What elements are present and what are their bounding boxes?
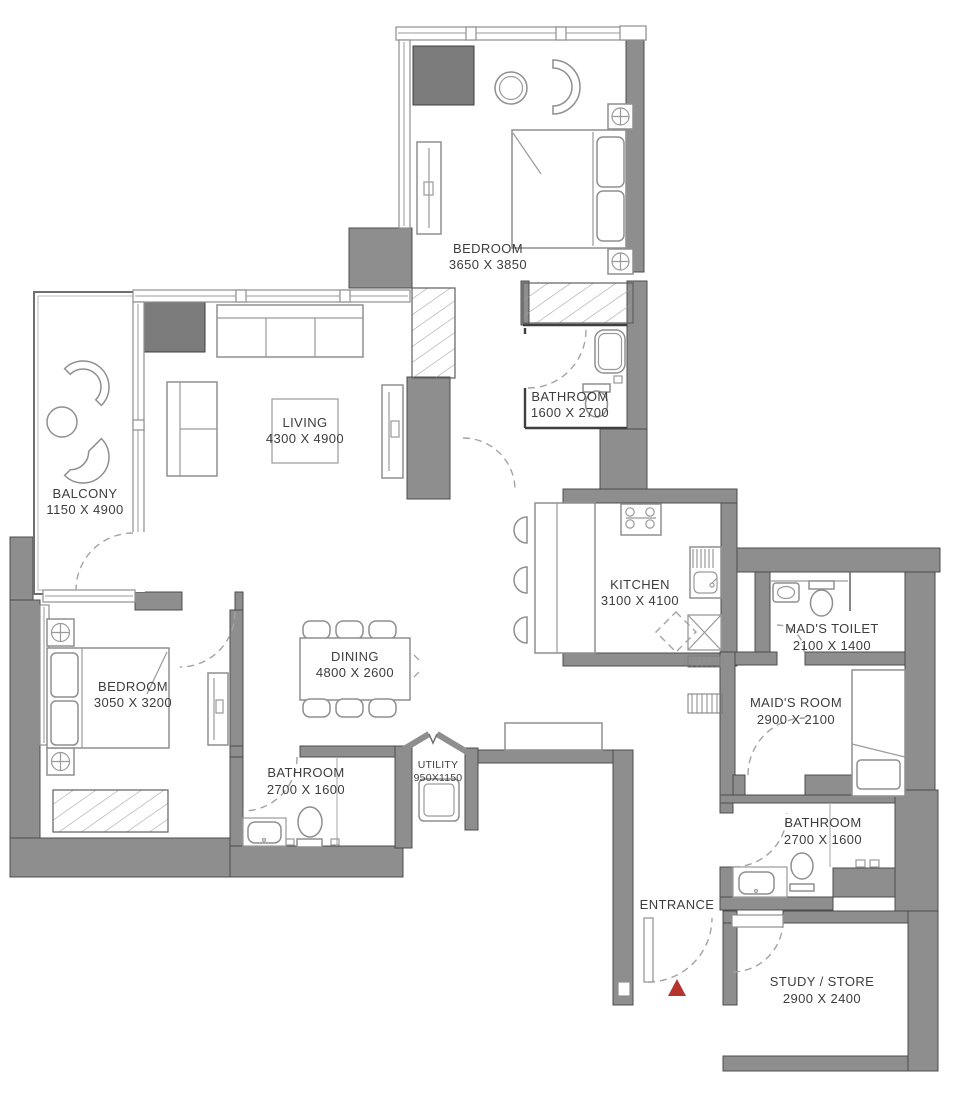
maids-room-dims: 2900 X 2100: [757, 712, 835, 727]
wall-segment: [755, 572, 770, 652]
wall-segment: [733, 775, 745, 795]
sofa-three-seat-icon: [217, 305, 363, 357]
living-dims: 4300 X 4900: [266, 431, 344, 446]
dining-chair-icon: [369, 699, 396, 717]
furniture-hall: [505, 723, 602, 750]
wall-segment: [723, 1056, 908, 1071]
closet-hatched: [412, 288, 455, 378]
wardrobe-block: [413, 46, 474, 105]
wall-segment: [733, 652, 777, 665]
wall-segment: [720, 867, 733, 900]
wardrobe-hatched: [53, 790, 168, 832]
balcony-dims: 1150 X 4900: [46, 502, 123, 517]
wall-segment: [895, 790, 938, 911]
pillow-icon: [597, 191, 624, 241]
bar-stool-icon: [514, 617, 527, 643]
study-label: STUDY / STORE: [770, 974, 874, 989]
pillow-icon: [51, 653, 78, 697]
furniture-bathroom-left: [243, 807, 339, 847]
wall-segment: [465, 748, 478, 830]
furniture-maids-room: [852, 670, 905, 796]
wall-segment: [805, 652, 905, 665]
bedroom-top-label: BEDROOM: [453, 241, 523, 256]
pillow-icon: [857, 760, 900, 789]
bedroom-second-label: BEDROOM: [98, 679, 168, 694]
kitchen-dims: 3100 X 4100: [601, 593, 679, 608]
furniture-maids-toilet: [770, 581, 848, 616]
maids-room-label: MAID'S ROOM: [750, 695, 842, 710]
bedroom-second-dims: 3050 X 3200: [94, 695, 172, 710]
fixture-mark: [870, 860, 879, 867]
bathroom-left-dims: 2700 X 1600: [267, 782, 345, 797]
ac-unit: [688, 694, 722, 713]
bar-stool-icon: [514, 567, 527, 593]
tv-unit-icon: [208, 673, 228, 745]
wall-segment: [720, 897, 833, 910]
fixture-mark: [614, 376, 622, 383]
utility-label: UTILITY: [418, 759, 459, 771]
toilet-tank: [297, 839, 322, 847]
sink-icon: [248, 822, 281, 843]
entrance-label: ENTRANCE: [640, 897, 715, 912]
study-door-leaf: [732, 915, 783, 927]
door-arc: [733, 813, 787, 867]
wall-segment: [478, 750, 613, 763]
dining-dims: 4800 X 2600: [316, 665, 394, 680]
floor-plan: BEDROOM 3650 X 3850 BATHROOM 1600 X 2700…: [0, 0, 963, 1100]
wall-segment: [230, 746, 243, 757]
balcony-table-icon: [47, 407, 77, 437]
furniture-balcony: [47, 350, 120, 494]
dining-chair-icon: [303, 699, 330, 717]
toilet-icon: [791, 853, 813, 879]
walls: [10, 40, 940, 1071]
dining-label: DINING: [331, 649, 379, 664]
balcony-door-opening: [131, 532, 145, 592]
wall-end-cap: [618, 982, 630, 996]
utility-dims: 950X1150: [414, 772, 463, 784]
bedroom-top-dims: 3650 X 3850: [449, 257, 527, 272]
door-arc: [732, 921, 783, 972]
living-label: LIVING: [282, 415, 327, 430]
wall-segment: [407, 377, 450, 499]
fixture-mark: [286, 839, 294, 845]
bathroom-right-dims: 2700 X 1600: [784, 832, 862, 847]
door-arc: [463, 438, 515, 490]
wall-segment: [908, 911, 938, 1071]
study-dims: 2900 X 2400: [783, 991, 861, 1006]
toilet-icon: [811, 590, 833, 616]
wall-segment: [783, 911, 926, 923]
dining-chair-icon: [303, 621, 330, 639]
wall-segment: [230, 757, 243, 846]
wall-segment: [720, 803, 733, 813]
wall-segment: [723, 923, 737, 1005]
toilet-icon: [298, 807, 322, 837]
wall-segment: [135, 592, 182, 610]
wall-segment: [905, 572, 935, 790]
wall-segment: [720, 652, 735, 795]
bathroom-right-label: BATHROOM: [784, 815, 861, 830]
wall-segment: [737, 548, 940, 572]
window-joint: [466, 27, 476, 40]
wall-segment: [10, 537, 33, 603]
curved-chair-icon: [553, 60, 580, 114]
maids-toilet-dims: 2100 X 1400: [793, 638, 871, 653]
sink-icon: [739, 872, 774, 894]
bathroom-top-dims: 1600 X 2700: [531, 405, 609, 420]
wall-segment: [10, 838, 230, 877]
toilet-tank: [790, 884, 814, 891]
fixture-mark: [331, 839, 339, 845]
wall-segment: [600, 429, 647, 492]
wall-segment: [613, 750, 633, 1005]
dining-chair-icon: [369, 621, 396, 639]
entry-door-leaf: [644, 918, 653, 982]
balcony-outline: [34, 292, 133, 594]
wall-segment: [563, 489, 737, 503]
wall-segment: [833, 868, 897, 897]
closet-hatched: [523, 283, 633, 323]
kitchen-label: KITCHEN: [610, 577, 670, 592]
bar-stool-icon: [514, 517, 527, 543]
pillow-icon: [597, 137, 624, 187]
door-arc: [180, 612, 235, 667]
wall-segment: [230, 846, 403, 877]
toilet-tank: [809, 581, 834, 589]
wall-segment: [721, 503, 737, 665]
entrance-marker: [668, 979, 686, 996]
bathroom-left-label: BATHROOM: [267, 765, 344, 780]
kitchen-counter-icon: [535, 503, 595, 653]
window-joint: [556, 27, 566, 40]
wall-segment: [349, 228, 412, 288]
dining-chair-icon: [336, 699, 363, 717]
vent-grille: [688, 656, 720, 667]
door-arc: [528, 330, 586, 388]
fixture-mark: [856, 860, 865, 867]
balcony-chair-icon: [65, 350, 120, 405]
tv-unit-icon: [382, 385, 403, 478]
window-joint: [133, 420, 144, 430]
balcony-label: BALCONY: [53, 486, 118, 501]
bathroom-top-label: BATHROOM: [531, 389, 608, 404]
door-arc: [648, 918, 712, 982]
wall-segment: [235, 592, 243, 612]
window-joint: [620, 26, 646, 40]
wall-segment: [395, 746, 412, 848]
dining-chair-icon: [336, 621, 363, 639]
wall-segment: [230, 610, 243, 757]
pillow-icon: [51, 701, 78, 745]
balcony-outline-inner: [38, 296, 133, 590]
wall-segment: [300, 746, 395, 757]
window-joint: [340, 290, 350, 302]
console-table-icon: [505, 723, 602, 750]
wall-segment: [10, 600, 40, 838]
window-joint: [236, 290, 246, 302]
door-arc: [76, 533, 133, 590]
maids-toilet-label: MAD'S TOILET: [785, 621, 879, 636]
wall-segment: [626, 40, 644, 272]
floor-plan-drawing: BEDROOM 3650 X 3850 BATHROOM 1600 X 2700…: [0, 0, 963, 1100]
